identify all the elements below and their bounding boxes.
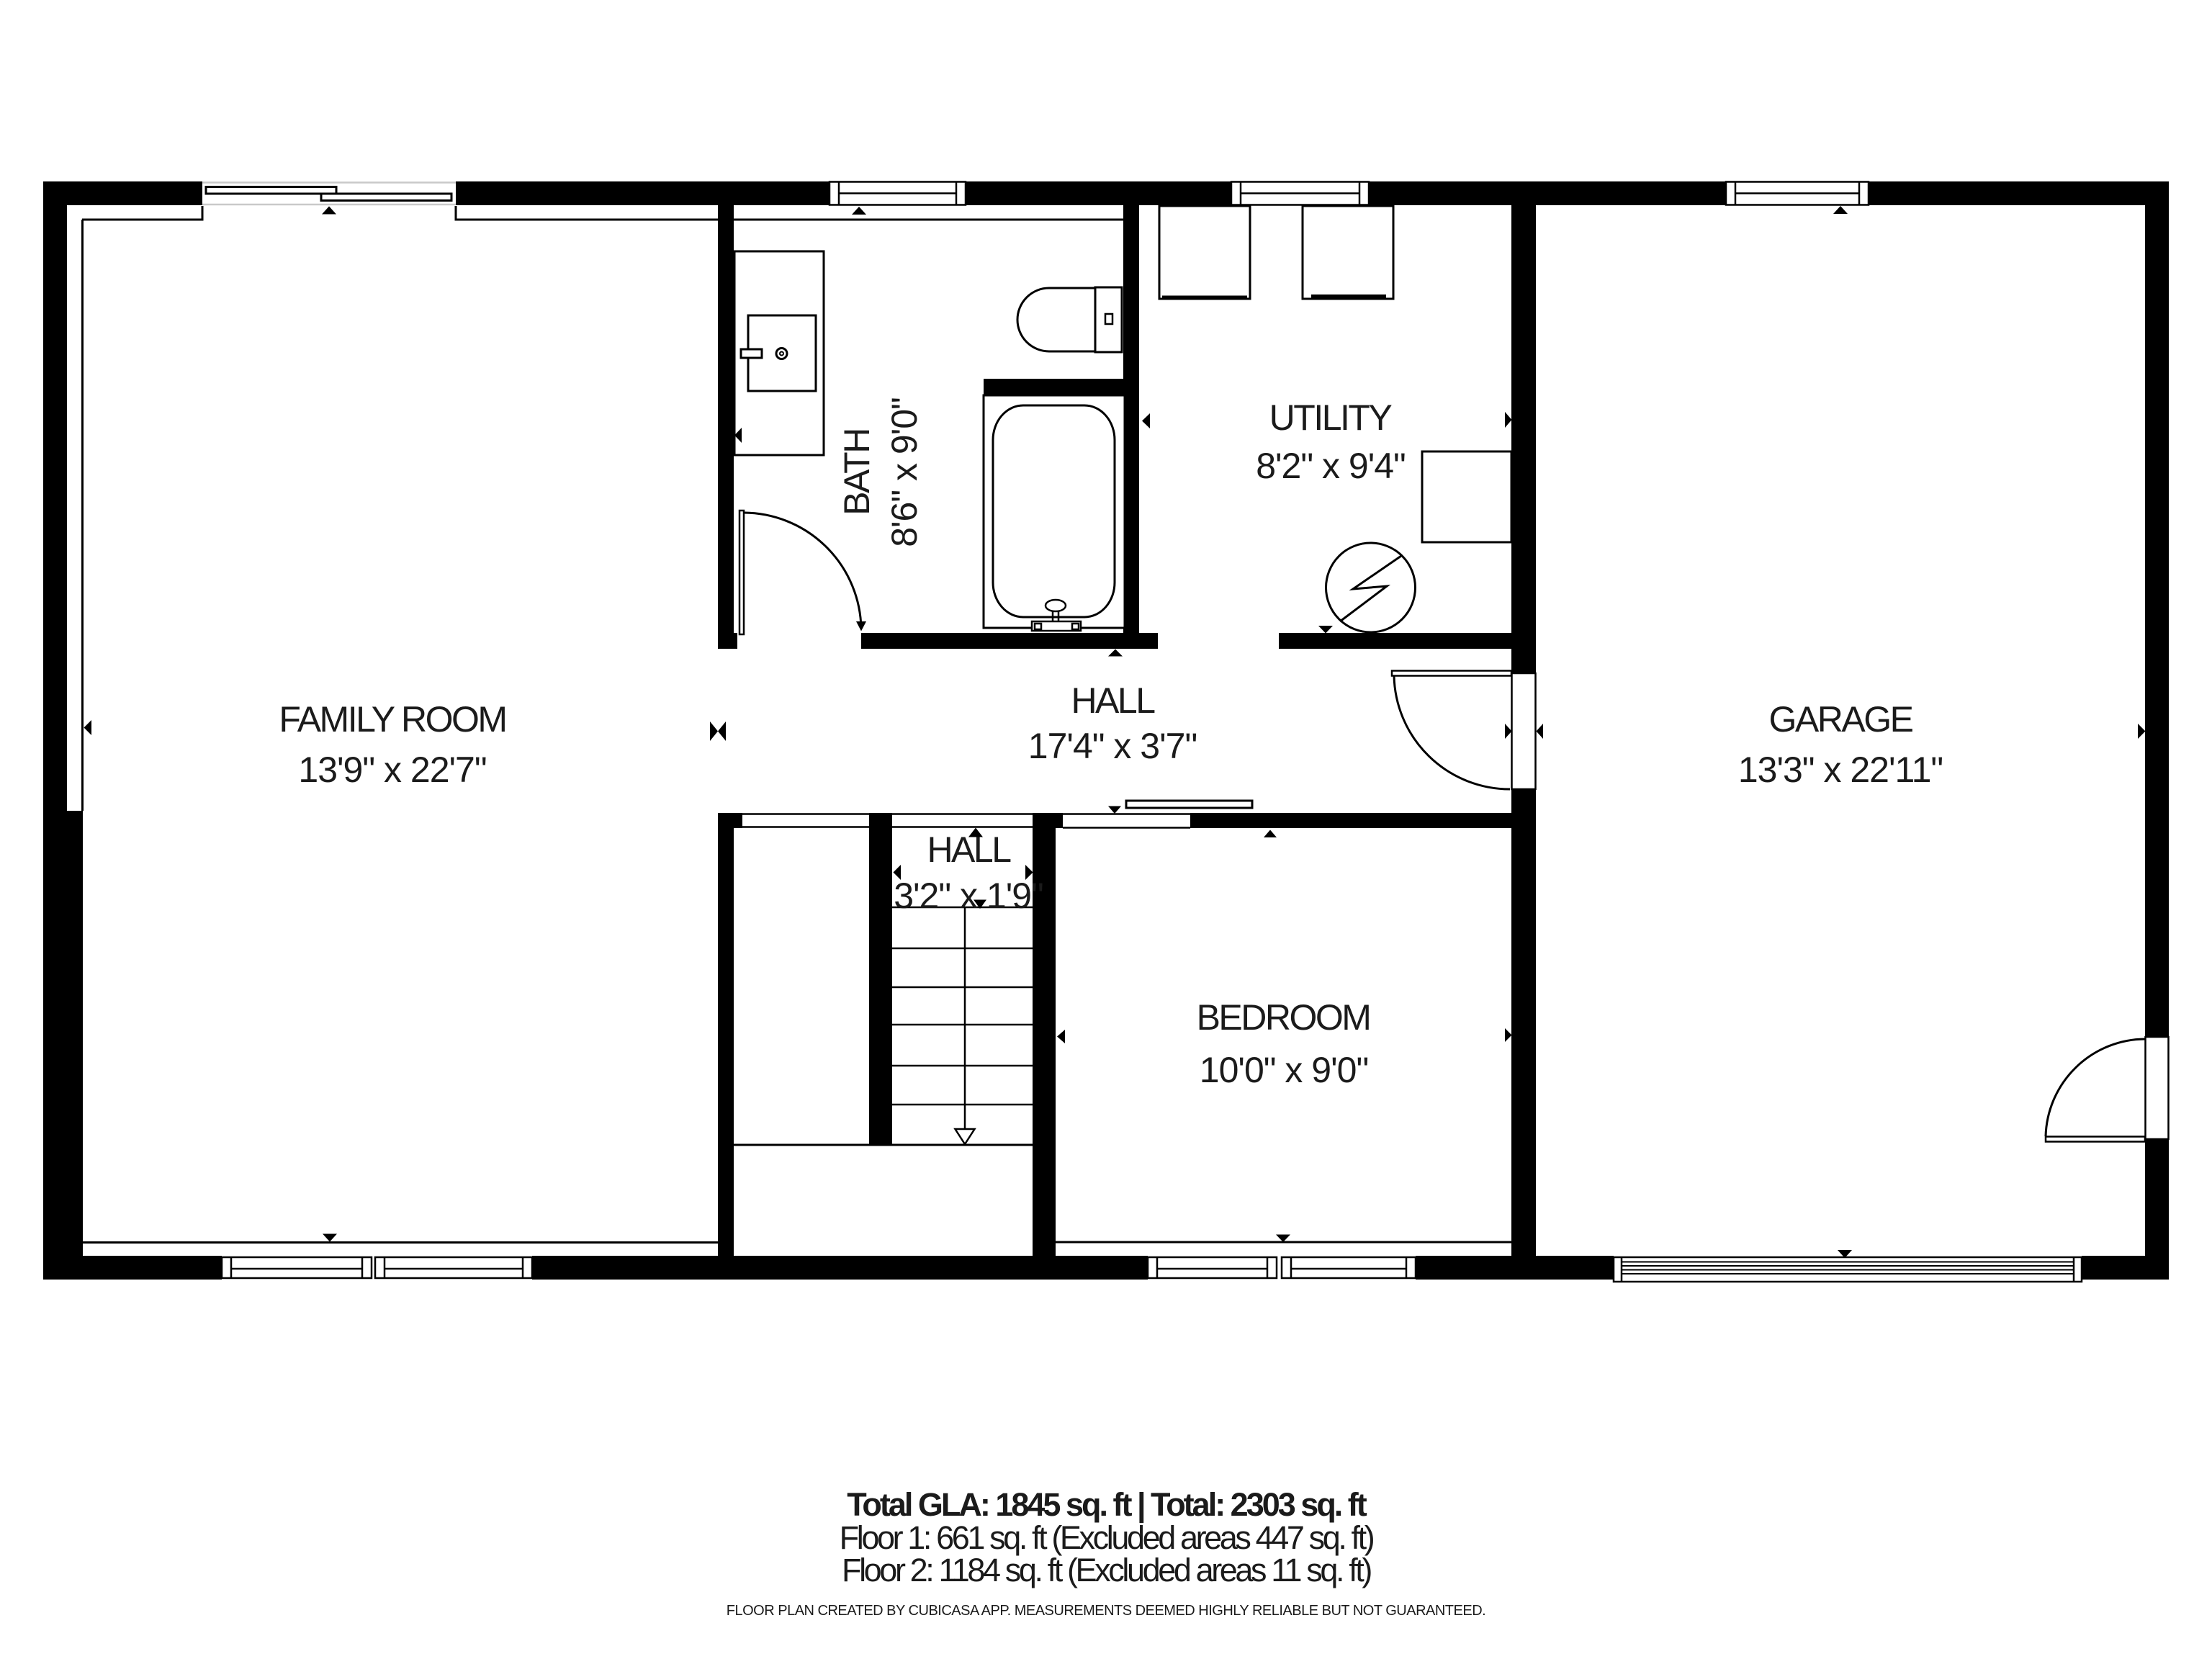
svg-text:HALL: HALL [927, 829, 1011, 870]
svg-text:FAMILY ROOM: FAMILY ROOM [279, 699, 505, 739]
svg-text:17'4" x 3'7": 17'4" x 3'7" [1028, 726, 1197, 766]
svg-text:GARAGE: GARAGE [1769, 699, 1913, 739]
svg-text:UTILITY: UTILITY [1269, 397, 1393, 438]
svg-text:8'6" x 9'0": 8'6" x 9'0" [884, 397, 925, 547]
svg-text:Floor 2: 1184 sq. ft (Excluded: Floor 2: 1184 sq. ft (Excluded areas 11 … [842, 1552, 1371, 1588]
svg-text:BATH: BATH [837, 429, 877, 516]
svg-text:13'9" x 22'7": 13'9" x 22'7" [298, 750, 486, 790]
svg-text:BEDROOM: BEDROOM [1197, 997, 1370, 1038]
svg-text:3'2" x 1'9": 3'2" x 1'9" [894, 876, 1043, 916]
svg-text:10'0" x 9'0": 10'0" x 9'0" [1200, 1050, 1368, 1090]
svg-text:13'3" x 22'11": 13'3" x 22'11" [1738, 750, 1943, 790]
svg-text:8'2" x 9'4": 8'2" x 9'4" [1256, 446, 1406, 486]
svg-text:Total GLA: 1845 sq. ft | Total: Total GLA: 1845 sq. ft | Total: 2303 sq.… [847, 1486, 1367, 1524]
svg-text:HALL: HALL [1071, 680, 1155, 721]
svg-text:FLOOR PLAN CREATED BY CUBICASA: FLOOR PLAN CREATED BY CUBICASA APP. MEAS… [727, 1603, 1485, 1619]
svg-text:Floor 1: 661 sq. ft (Excluded: Floor 1: 661 sq. ft (Excluded areas 447 … [840, 1519, 1374, 1556]
